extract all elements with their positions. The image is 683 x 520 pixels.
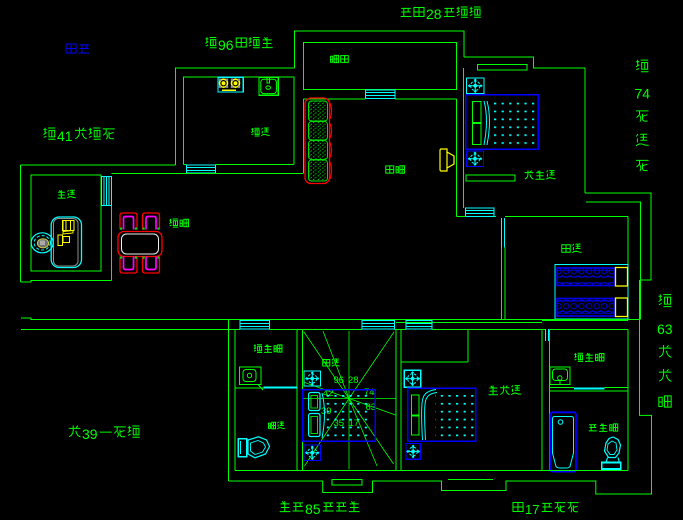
- svg-text:96: 96: [334, 375, 345, 386]
- svg-text:28: 28: [348, 375, 359, 386]
- svg-text:17: 17: [525, 502, 539, 517]
- svg-text:28: 28: [426, 6, 442, 22]
- svg-text:85: 85: [305, 501, 321, 517]
- svg-text:63: 63: [657, 321, 673, 337]
- svg-text:74: 74: [635, 86, 651, 102]
- svg-text:96: 96: [218, 37, 234, 53]
- svg-text:41: 41: [57, 128, 73, 144]
- svg-text:39: 39: [82, 426, 98, 442]
